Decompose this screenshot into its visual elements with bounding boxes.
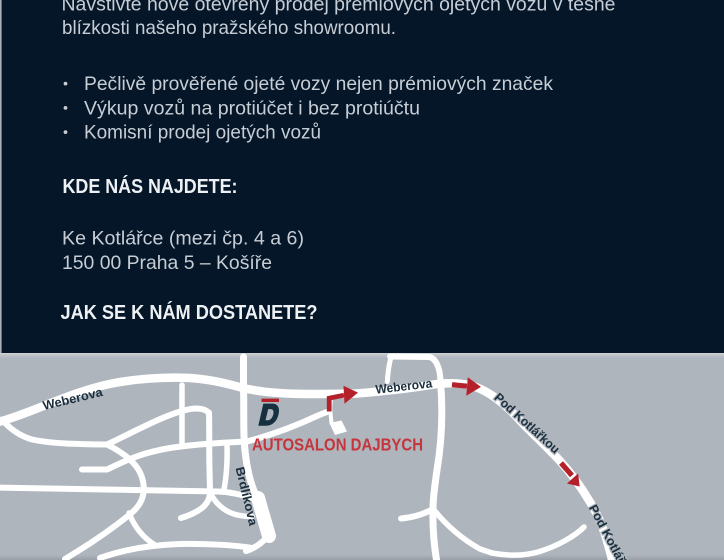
svg-text:150 00 Praha 5 – Košíře: 150 00 Praha 5 – Košíře [62, 252, 272, 274]
svg-text:AUTOSALON DAJBYCH: AUTOSALON DAJBYCH [252, 434, 423, 454]
svg-text:Pečlivě prověřené ojeté vozy n: Pečlivě prověřené ojeté vozy nejen prémi… [84, 73, 553, 95]
svg-text:Komisní prodej ojetých vozů: Komisní prodej ojetých vozů [84, 122, 321, 144]
svg-text:Výkup vozů na protiúčet i bez: Výkup vozů na protiúčet i bez protiúčtu [84, 97, 420, 119]
svg-text:KDE NÁS NAJDETE:: KDE NÁS NAJDETE: [63, 175, 238, 198]
svg-text:Ke Kotlářce (mezi čp. 4 a 6): Ke Kotlářce (mezi čp. 4 a 6) [62, 227, 304, 249]
svg-text:JAK SE K NÁM DOSTANETE?: JAK SE K NÁM DOSTANETE? [61, 301, 318, 324]
svg-text:blízkosti našeho pražského sho: blízkosti našeho pražského showroomu. [62, 17, 396, 39]
svg-text:Navštivte nově otevřený prodej: Navštivte nově otevřený prodej prémiovýc… [62, 0, 616, 16]
